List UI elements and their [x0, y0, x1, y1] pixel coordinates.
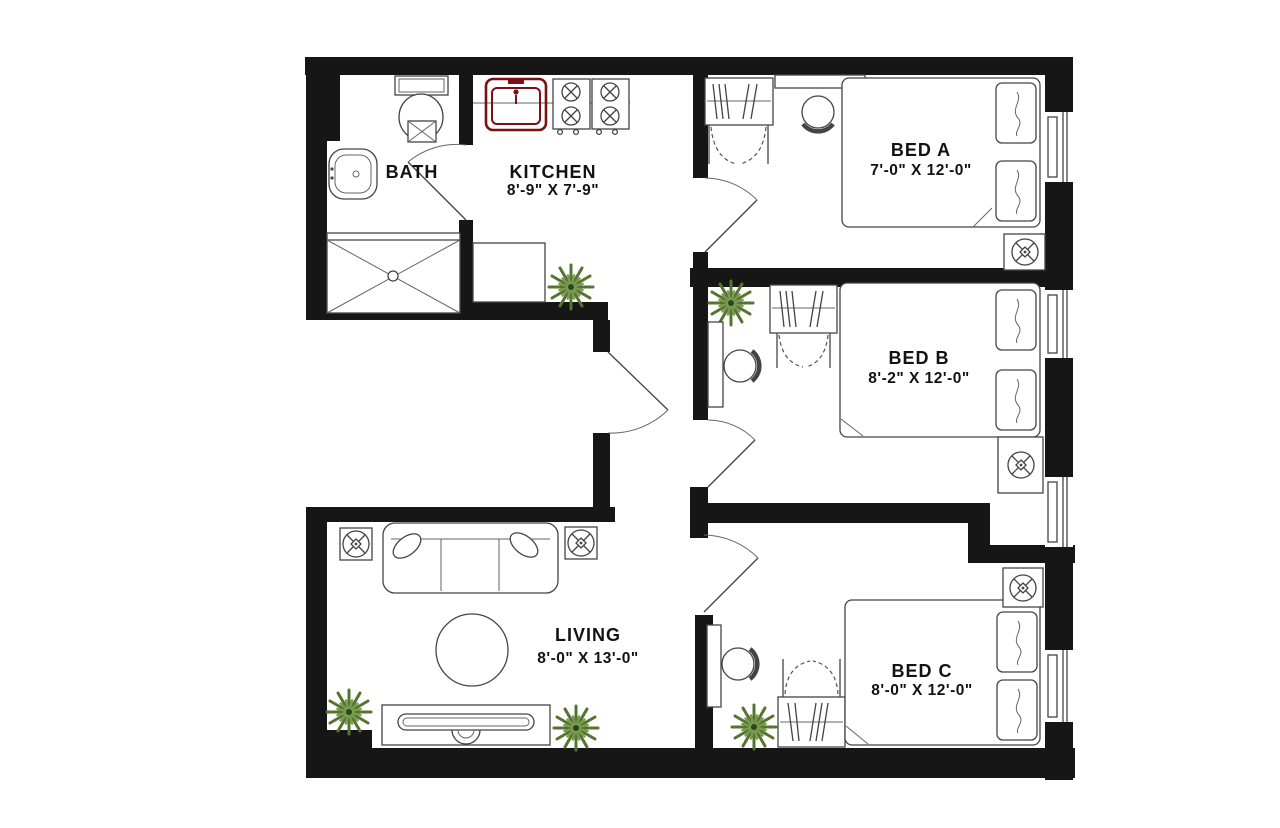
- floor-plan-page: BATH KITCHEN 8'-9" X 7'-9" BED A 7'-0" X…: [0, 0, 1280, 828]
- stove-icon: [553, 79, 629, 134]
- door-bed-c: [704, 535, 758, 612]
- dims-bed-a: 7'-0" X 12'-0": [870, 162, 971, 179]
- door-entry: [608, 352, 668, 433]
- chair-bed-a: [802, 96, 834, 131]
- label-kitchen: KITCHEN: [510, 162, 597, 182]
- label-living: LIVING: [555, 625, 621, 645]
- plant-bed-b: [709, 281, 753, 325]
- sofa-icon: [383, 523, 558, 593]
- label-bed-a: BED A: [891, 140, 951, 160]
- round-table-icon: [436, 614, 508, 686]
- door-bed-a: [705, 178, 757, 252]
- dims-kitchen: 8'-9" X 7'-9": [507, 182, 599, 199]
- floor-plan-drawing: BATH KITCHEN 8'-9" X 7'-9" BED A 7'-0" X…: [0, 0, 1280, 828]
- toilet-icon: [395, 76, 448, 142]
- window-bed-b-north: [1045, 290, 1073, 358]
- label-bath: BATH: [386, 162, 439, 182]
- plant-living-right: [554, 706, 598, 750]
- bed-c-furniture: [707, 568, 1043, 749]
- bath-sink-icon: [329, 149, 377, 199]
- label-bed-b: BED B: [888, 348, 949, 368]
- dims-bed-b: 8'-2" X 12'-0": [868, 370, 969, 387]
- door-bath: [408, 144, 466, 220]
- chair-bed-c: [722, 648, 757, 680]
- dims-living: 8'-0" X 13'-0": [537, 650, 638, 667]
- fan-bed-a: [1012, 239, 1038, 265]
- desk-bed-b: [708, 322, 723, 407]
- window-bed-c: [1045, 650, 1073, 722]
- fan-bed-b: [1008, 452, 1034, 478]
- closet-bed-b: [770, 285, 837, 368]
- window-bed-b-south: [1045, 477, 1073, 547]
- plant-bed-c: [732, 705, 776, 749]
- bed-b-furniture: [708, 281, 1043, 493]
- plant-living-left: [327, 690, 371, 734]
- shower-icon: [327, 233, 460, 313]
- kitchen-island: [473, 243, 545, 302]
- chair-bed-b: [724, 350, 759, 382]
- label-bed-c: BED C: [891, 661, 952, 681]
- tv-console-icon: [382, 705, 550, 745]
- closet-bed-c: [778, 659, 845, 747]
- closet-bed-a: [705, 78, 773, 164]
- kitchen-sink-icon: [486, 79, 546, 130]
- dims-bed-c: 8'-0" X 12'-0": [871, 682, 972, 699]
- window-bed-a: [1045, 112, 1073, 182]
- door-bed-b: [708, 420, 755, 487]
- fan-bed-c: [1010, 575, 1036, 601]
- desk-bed-c: [707, 625, 721, 707]
